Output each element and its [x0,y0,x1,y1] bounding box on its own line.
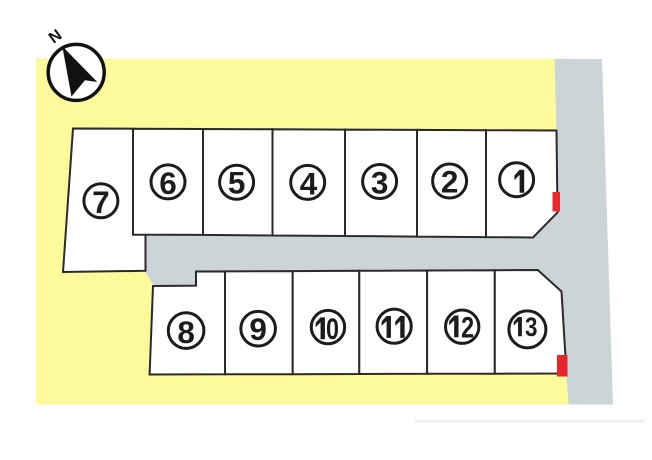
svg-text:0: 0 [326,313,339,346]
svg-text:4: 4 [300,165,318,201]
svg-text:2: 2 [441,163,459,199]
svg-text:5: 5 [228,165,246,201]
svg-text:3: 3 [525,312,538,342]
svg-text:7: 7 [92,184,110,220]
svg-text:9: 9 [249,311,267,347]
svg-text:6: 6 [159,165,177,201]
svg-text:8: 8 [177,314,195,350]
svg-text:N: N [46,27,65,48]
svg-text:2: 2 [461,311,474,344]
svg-text:3: 3 [371,165,389,201]
